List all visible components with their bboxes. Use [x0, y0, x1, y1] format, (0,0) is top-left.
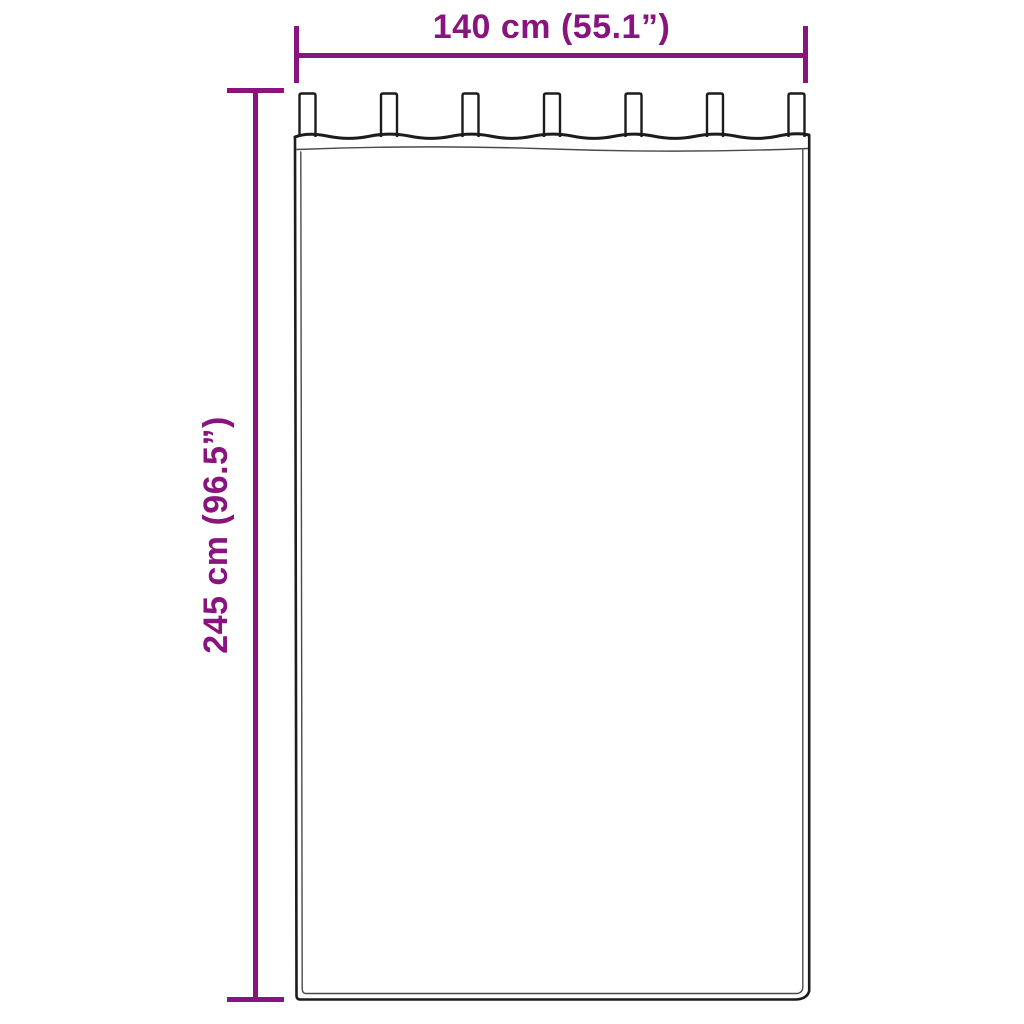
curtain-illustration	[290, 88, 815, 1008]
curtain-tab-5	[626, 94, 642, 138]
curtain-hem-seam	[301, 150, 803, 994]
curtain-tab-2	[381, 94, 397, 138]
curtain-panel-outline	[295, 135, 809, 1000]
curtain-tab-1	[300, 94, 316, 138]
curtain-dimension-diagram: 140 cm (55.1”) 245 cm (96.5”)	[0, 0, 1024, 1024]
curtain-tab-6	[707, 94, 723, 138]
width-dimension-line	[296, 53, 807, 58]
width-dimension-label: 140 cm (55.1”)	[296, 6, 807, 48]
curtain-tab-3	[463, 94, 479, 138]
width-dimension-left-tick	[294, 26, 299, 83]
height-dimension-line	[253, 90, 258, 1000]
height-dimension-top-tick	[227, 88, 284, 93]
height-dimension-label: 245 cm (96.5”)	[196, 365, 236, 705]
curtain-tab-4	[544, 94, 560, 138]
width-dimension-right-tick	[803, 26, 808, 83]
height-dimension-bottom-tick	[227, 997, 284, 1002]
curtain-header-seam	[297, 147, 808, 151]
curtain-tab-7	[789, 94, 805, 138]
